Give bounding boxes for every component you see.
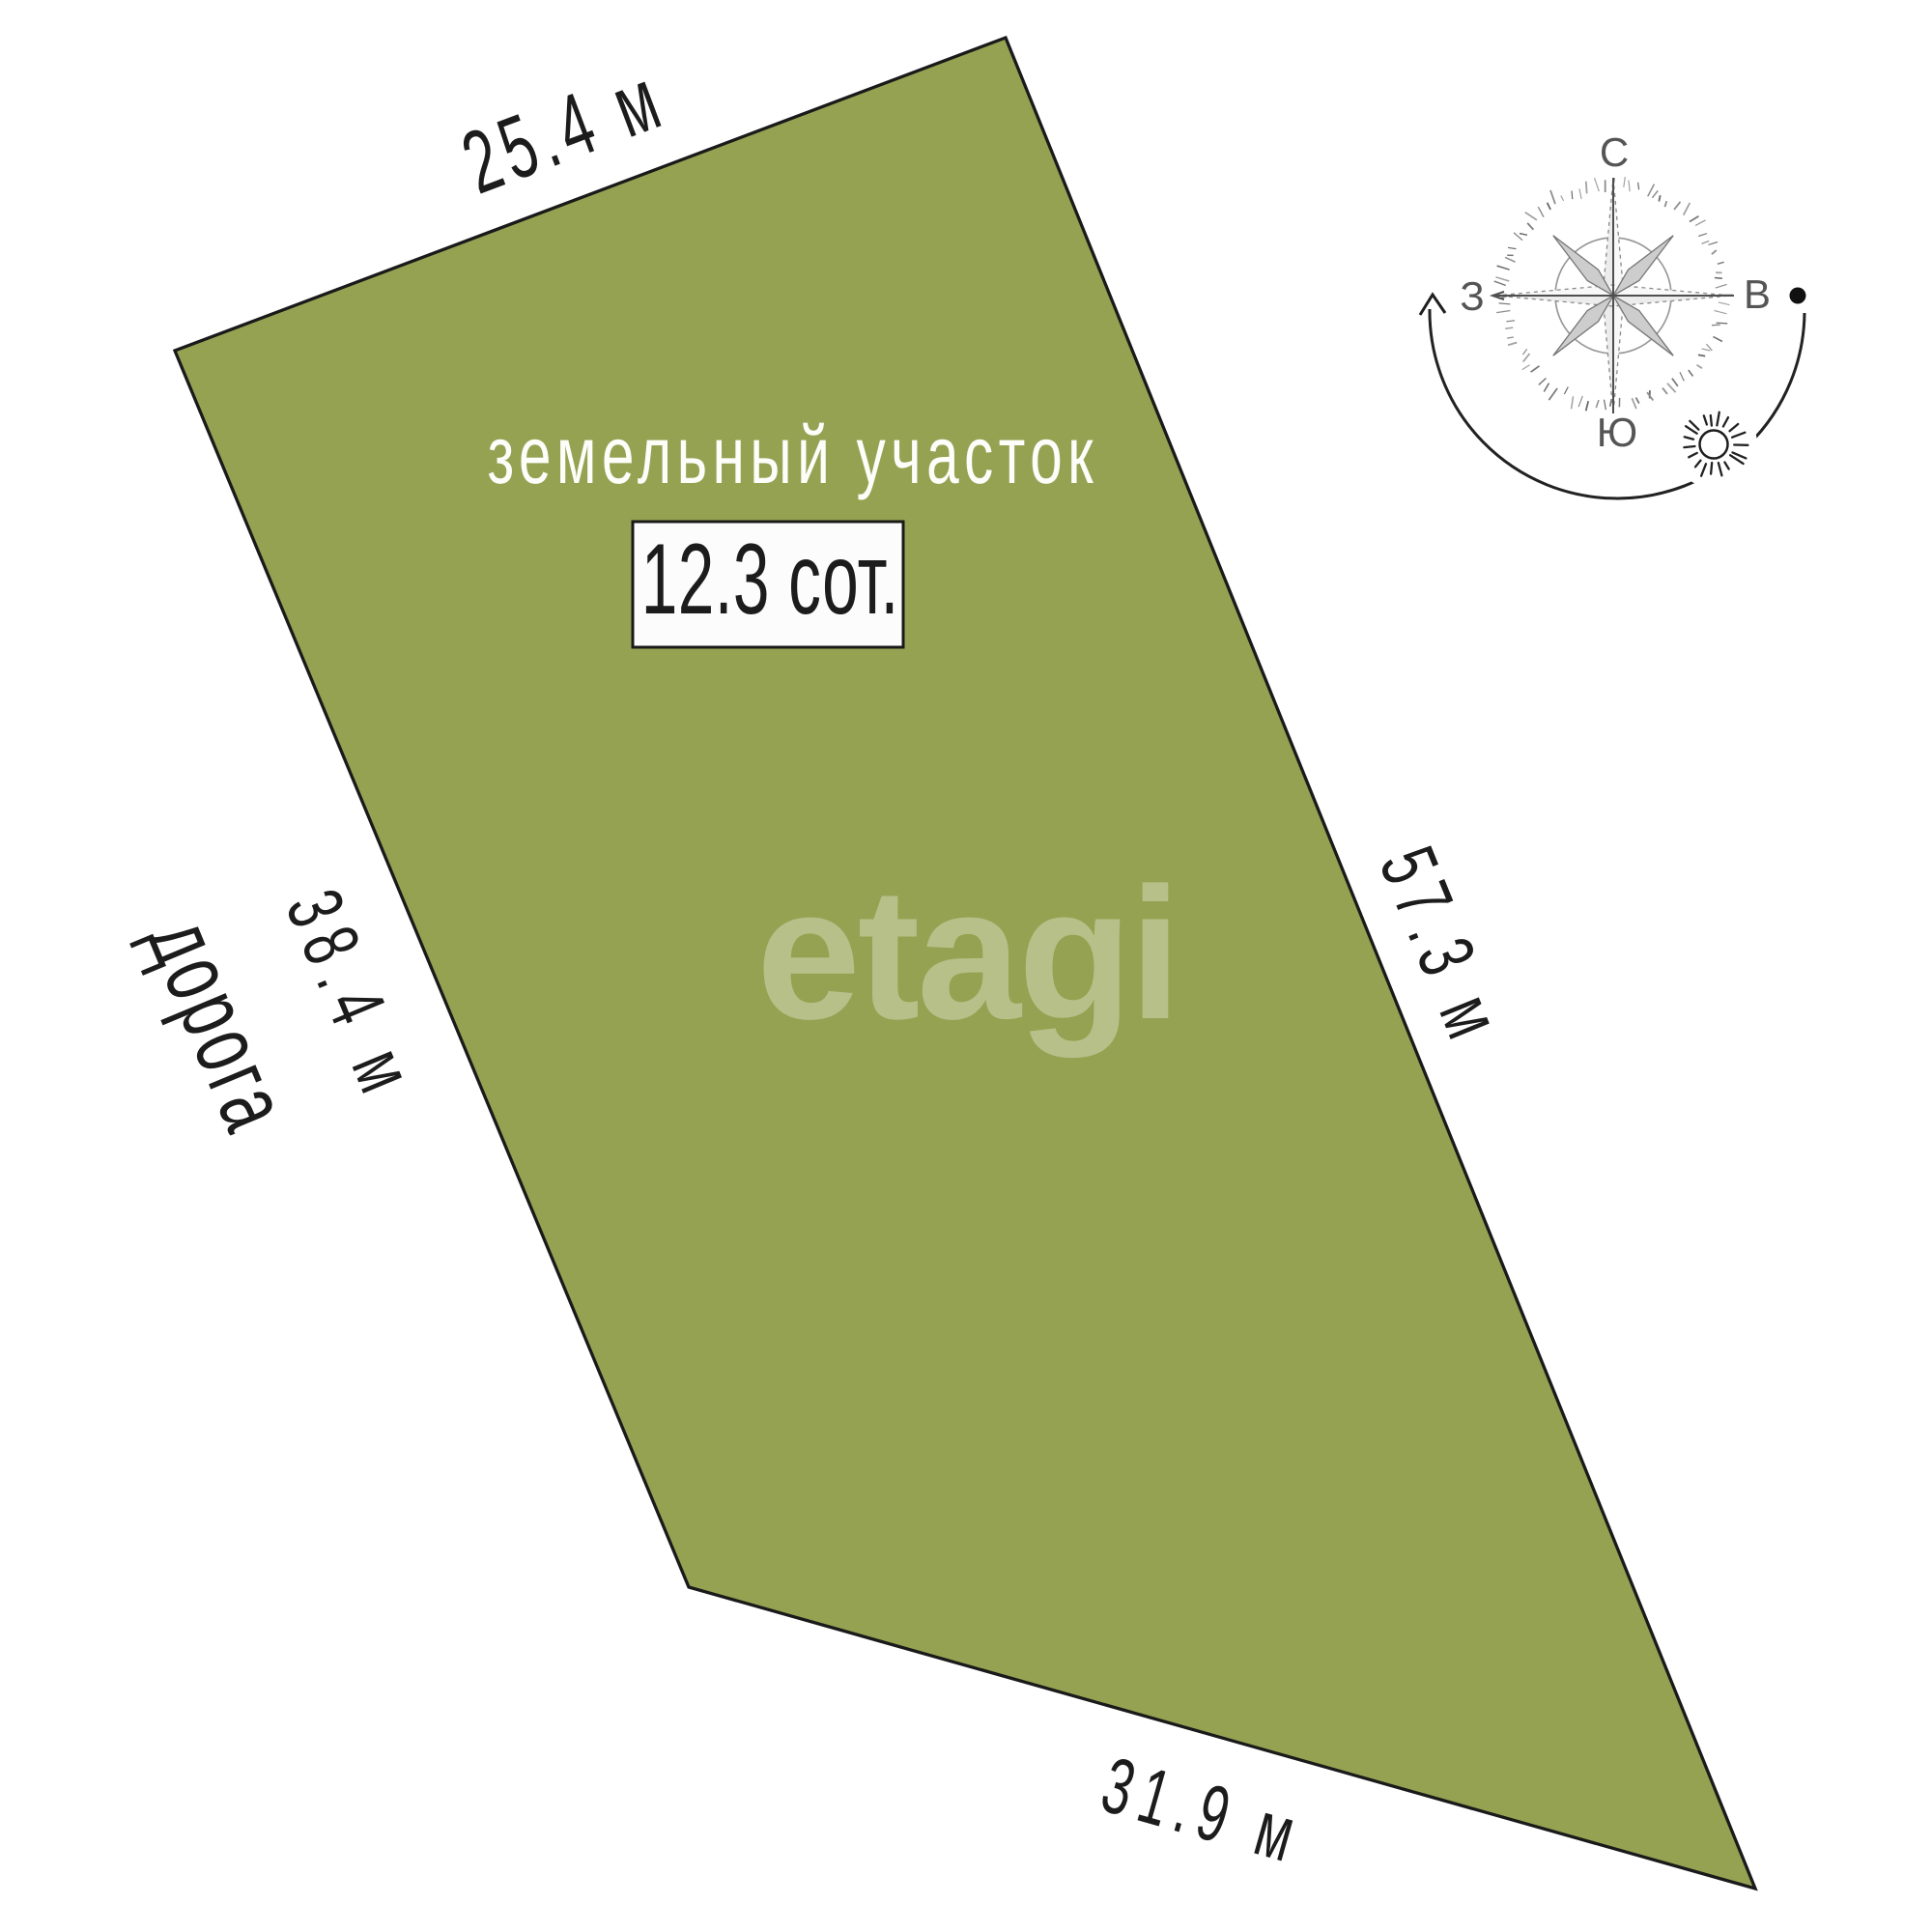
svg-text:З: З [1460, 273, 1484, 319]
svg-text:Ю: Ю [1597, 410, 1637, 455]
svg-text:земельный участок: земельный участок [487, 410, 1094, 500]
svg-text:В: В [1744, 271, 1771, 317]
svg-text:etagi: etagi [756, 849, 1181, 1059]
svg-text:С: С [1600, 129, 1629, 175]
svg-text:12.3 сот.: 12.3 сот. [641, 524, 899, 636]
